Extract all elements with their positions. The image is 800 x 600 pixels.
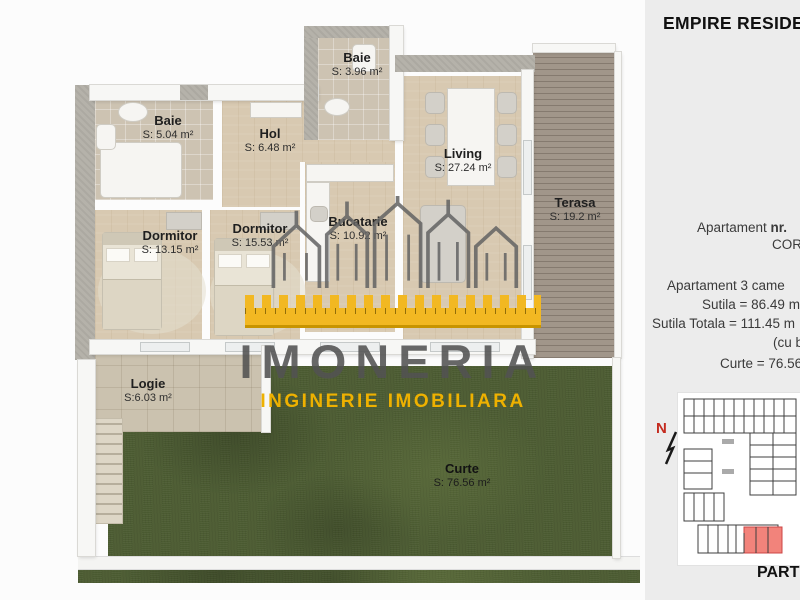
chair-icon (497, 92, 517, 114)
window-bottom-4 (430, 342, 500, 352)
room-name: Baie (332, 50, 383, 66)
wall-logie-right (262, 346, 270, 432)
room-area: S: 15.53 m² (232, 237, 289, 251)
room-area: S: 5.04 m² (143, 129, 194, 143)
closet-icon (250, 102, 302, 118)
room-area: S: 3.96 m² (332, 66, 383, 80)
pillow-icon (106, 248, 130, 262)
wall-living-terasa (522, 70, 533, 358)
yard-grass-strip (78, 570, 640, 583)
yard-retaining-wall (78, 556, 640, 570)
site-plan (678, 393, 800, 565)
room-area: S: 13.15 m² (142, 244, 199, 258)
room-area: S: 76.56 m² (434, 477, 491, 491)
room-label-curte: Curte S: 76.56 m² (434, 461, 491, 491)
pillow-icon (246, 254, 270, 268)
window-terasa-door-1 (523, 140, 532, 195)
room-name: Curte (434, 461, 491, 477)
room-label-baie-1: Baie S: 5.04 m² (143, 113, 194, 143)
bathtub-icon (100, 142, 182, 198)
room-label-logie: Logie S:6.03 m² (124, 376, 172, 406)
room-name: Hol (245, 126, 296, 142)
room-area: S: 27.24 m² (435, 162, 492, 176)
room-name: Logie (124, 376, 172, 392)
kitchen-sink-icon (310, 206, 328, 222)
apartment-number-line: Apartament nr. (697, 220, 787, 235)
room-floor-hol-corridor (222, 162, 300, 207)
room-name: Terasa (550, 195, 601, 211)
room-area: S: 10.92 m² (328, 230, 387, 244)
room-label-bucatarie: Bucatarie S: 10.92 m² (328, 214, 387, 244)
wall-top-concrete-segment (180, 85, 208, 100)
room-area: S: 6.48 m² (245, 142, 296, 156)
bed-icon (214, 238, 274, 336)
apartment-label: Apartament (697, 220, 771, 235)
kitchen-counter-icon (306, 182, 330, 282)
room-name: Dormitor (142, 228, 199, 244)
rooms-count-line: Apartament 3 came (667, 278, 785, 293)
room-name: Bucatarie (328, 214, 387, 230)
room-area: S: 19.2 m² (550, 211, 601, 225)
sink-icon (324, 98, 350, 116)
floorplan-screenshot: Baie S: 5.04 m² Baie S: 3.96 m² Hol S: 6… (0, 0, 800, 600)
wall-baie2-top-concrete (304, 26, 402, 38)
window-bottom-3 (320, 342, 380, 352)
sofa-icon (420, 205, 466, 283)
wall-left-lower (78, 360, 95, 556)
room-name: Baie (143, 113, 194, 129)
usable-area-line: Sutila = 86.49 m (702, 297, 800, 312)
wall-left-concrete (75, 85, 95, 360)
room-label-dormitor-1: Dormitor S: 13.15 m² (142, 228, 199, 258)
room-label-hol: Hol S: 6.48 m² (245, 126, 296, 156)
yard-area-line: Curte = 76.56 m (720, 356, 800, 371)
chair-icon (497, 156, 517, 178)
room-label-living: Living S: 27.24 m² (435, 146, 492, 176)
wall-living-top-concrete (395, 55, 535, 72)
project-title: EMPIRE RESIDENC (663, 13, 800, 34)
room-name: Dormitor (232, 221, 289, 237)
toilet-icon (96, 124, 116, 150)
bed-blanket (103, 279, 161, 329)
bed-blanket (215, 285, 273, 335)
room-area: S:6.03 m² (124, 392, 172, 406)
apartment-nr-label: nr. (771, 220, 788, 235)
garden-steps (95, 418, 123, 524)
room-label-dormitor-2: Dormitor S: 15.53 m² (232, 221, 289, 251)
wall-terasa-right (615, 52, 621, 358)
chair-icon (497, 124, 517, 146)
window-terasa-door-2 (523, 245, 532, 300)
room-label-baie-2: Baie S: 3.96 m² (332, 50, 383, 80)
room-name: Living (435, 146, 492, 162)
window-bottom-1 (140, 342, 190, 352)
site-plan-svg (678, 393, 800, 565)
balcony-note-line: (cu balco (773, 335, 800, 350)
chair-icon (425, 124, 445, 146)
pillow-icon (218, 254, 242, 268)
total-area-line: Sutila Totala = 111.45 m (652, 316, 795, 331)
room-label-terasa: Terasa S: 19.2 m² (550, 195, 601, 225)
floor-level-label: PARTE (757, 564, 800, 582)
kitchen-counter-icon (306, 164, 394, 182)
wall-terasa-top (533, 44, 615, 52)
wall-yard-right (613, 358, 620, 558)
wall-baie2-right (390, 26, 403, 140)
chair-icon (425, 92, 445, 114)
wall-baie2-left-concrete (304, 26, 318, 140)
corp-line: CORP (772, 237, 800, 252)
